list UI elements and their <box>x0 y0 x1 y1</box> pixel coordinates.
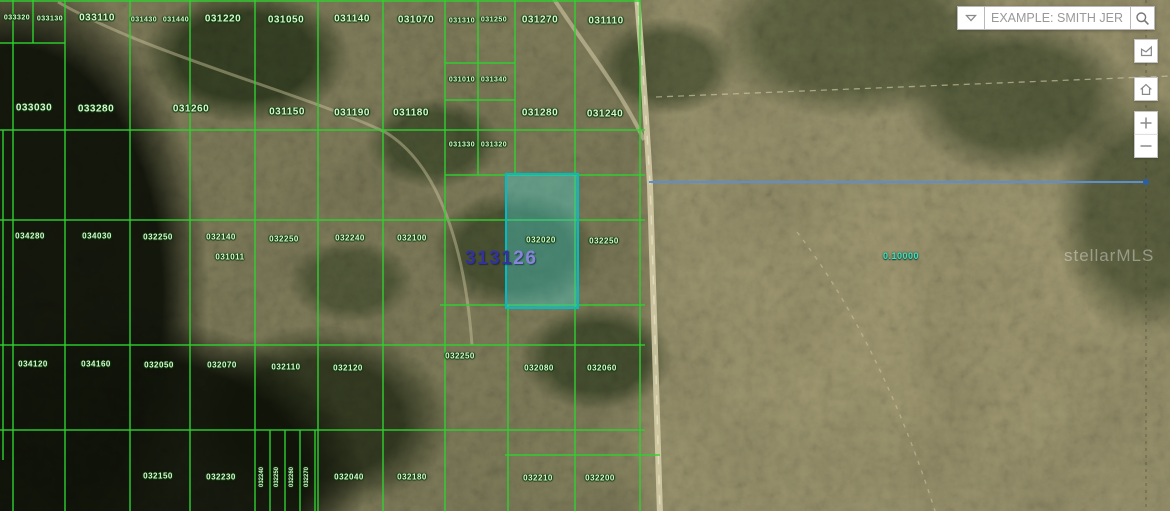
parcel-label: 032120 <box>333 364 363 373</box>
parcel-label: 031050 <box>268 15 304 26</box>
parcel-label: 032210 <box>523 474 553 483</box>
parcel-label: 032260 <box>289 467 295 487</box>
parcel-label: 031340 <box>481 77 507 84</box>
parcel-label: 031280 <box>522 108 558 119</box>
parcel-label: 032070 <box>207 361 237 370</box>
measure-area-button[interactable] <box>1134 39 1158 63</box>
parcel-label: 033030 <box>16 103 52 114</box>
parcel-label: 031220 <box>205 14 241 25</box>
parcel-number-light: 26 <box>513 248 537 269</box>
home-button[interactable] <box>1134 77 1158 101</box>
parcel-label: 032250 <box>143 233 173 242</box>
parcel-label: 032250 <box>269 235 299 244</box>
zoom-in-button[interactable] <box>1134 111 1158 135</box>
parcel-label: 031140 <box>334 14 370 25</box>
search-bar <box>957 6 1155 30</box>
parcel-label: 031180 <box>393 108 429 119</box>
parcel-label: 032110 <box>271 363 300 372</box>
parcel-label: 032200 <box>585 474 615 483</box>
parcel-grid <box>0 0 1170 511</box>
parcel-label: 031011 <box>215 253 244 262</box>
watermark: stellarMLS <box>1064 246 1154 266</box>
parcel-label: 032180 <box>397 473 427 482</box>
parcel-label: 031430 <box>131 17 157 24</box>
parcel-label: 031440 <box>163 17 189 24</box>
parcel-label: 031190 <box>334 108 370 119</box>
parcel-label: 033130 <box>37 16 63 23</box>
magnifier-icon <box>1135 11 1150 26</box>
parcel-label: 032080 <box>524 364 554 373</box>
selected-parcel-number: 313126 <box>465 248 537 270</box>
parcel-label: 032250 <box>445 352 475 361</box>
zoom-out-button[interactable] <box>1134 134 1158 158</box>
parcel-label: 032240 <box>335 234 365 243</box>
parcel-label: 031070 <box>398 15 434 26</box>
parcel-label: 033320 <box>4 15 30 22</box>
parcel-label: 031240 <box>587 109 623 120</box>
minus-icon <box>1139 139 1153 153</box>
parcel-label: 032230 <box>206 473 236 482</box>
parcel-label: 031110 <box>588 16 623 27</box>
search-input[interactable] <box>985 6 1131 30</box>
parcel-label: 032040 <box>334 473 364 482</box>
parcel-label: 034160 <box>81 360 111 369</box>
polygon-icon <box>1138 43 1154 59</box>
parcel-label: 031010 <box>449 77 475 84</box>
home-icon <box>1138 81 1154 97</box>
parcel-label: 032270 <box>304 467 310 487</box>
parcel-label: 032250 <box>274 467 280 487</box>
parcel-label: 032050 <box>144 361 174 370</box>
measurement-label: 0.10000 <box>883 251 919 261</box>
parcel-label: 031250 <box>481 17 507 24</box>
parcel-label: 031260 <box>173 104 209 115</box>
parcel-label: 031330 <box>449 142 475 149</box>
parcel-label: 031310 <box>449 18 475 25</box>
plus-icon <box>1139 116 1153 130</box>
map-viewport[interactable]: 0333200331300331100314300314400312200310… <box>0 0 1170 511</box>
parcel-label: 033280 <box>78 104 114 115</box>
parcel-label: 032100 <box>397 234 427 243</box>
parcel-label: 034280 <box>15 232 45 241</box>
parcel-label: 031320 <box>481 142 507 149</box>
parcel-label: 031270 <box>522 15 558 26</box>
parcel-label: 032020 <box>526 236 556 245</box>
parcel-label: 034120 <box>18 360 48 369</box>
chevron-down-icon <box>965 14 977 22</box>
search-button[interactable] <box>1131 6 1155 30</box>
parcel-label: 032150 <box>143 472 173 481</box>
search-type-dropdown[interactable] <box>957 6 985 30</box>
parcel-label: 033110 <box>79 13 115 24</box>
parcel-label: 032060 <box>587 364 617 373</box>
parcel-number-dark: 3131 <box>465 248 513 269</box>
parcel-label: 032140 <box>206 233 236 242</box>
parcel-label: 034030 <box>82 232 112 241</box>
parcel-label: 032240 <box>259 467 265 487</box>
parcel-label: 032250 <box>589 237 619 246</box>
parcel-label: 031150 <box>269 107 305 118</box>
